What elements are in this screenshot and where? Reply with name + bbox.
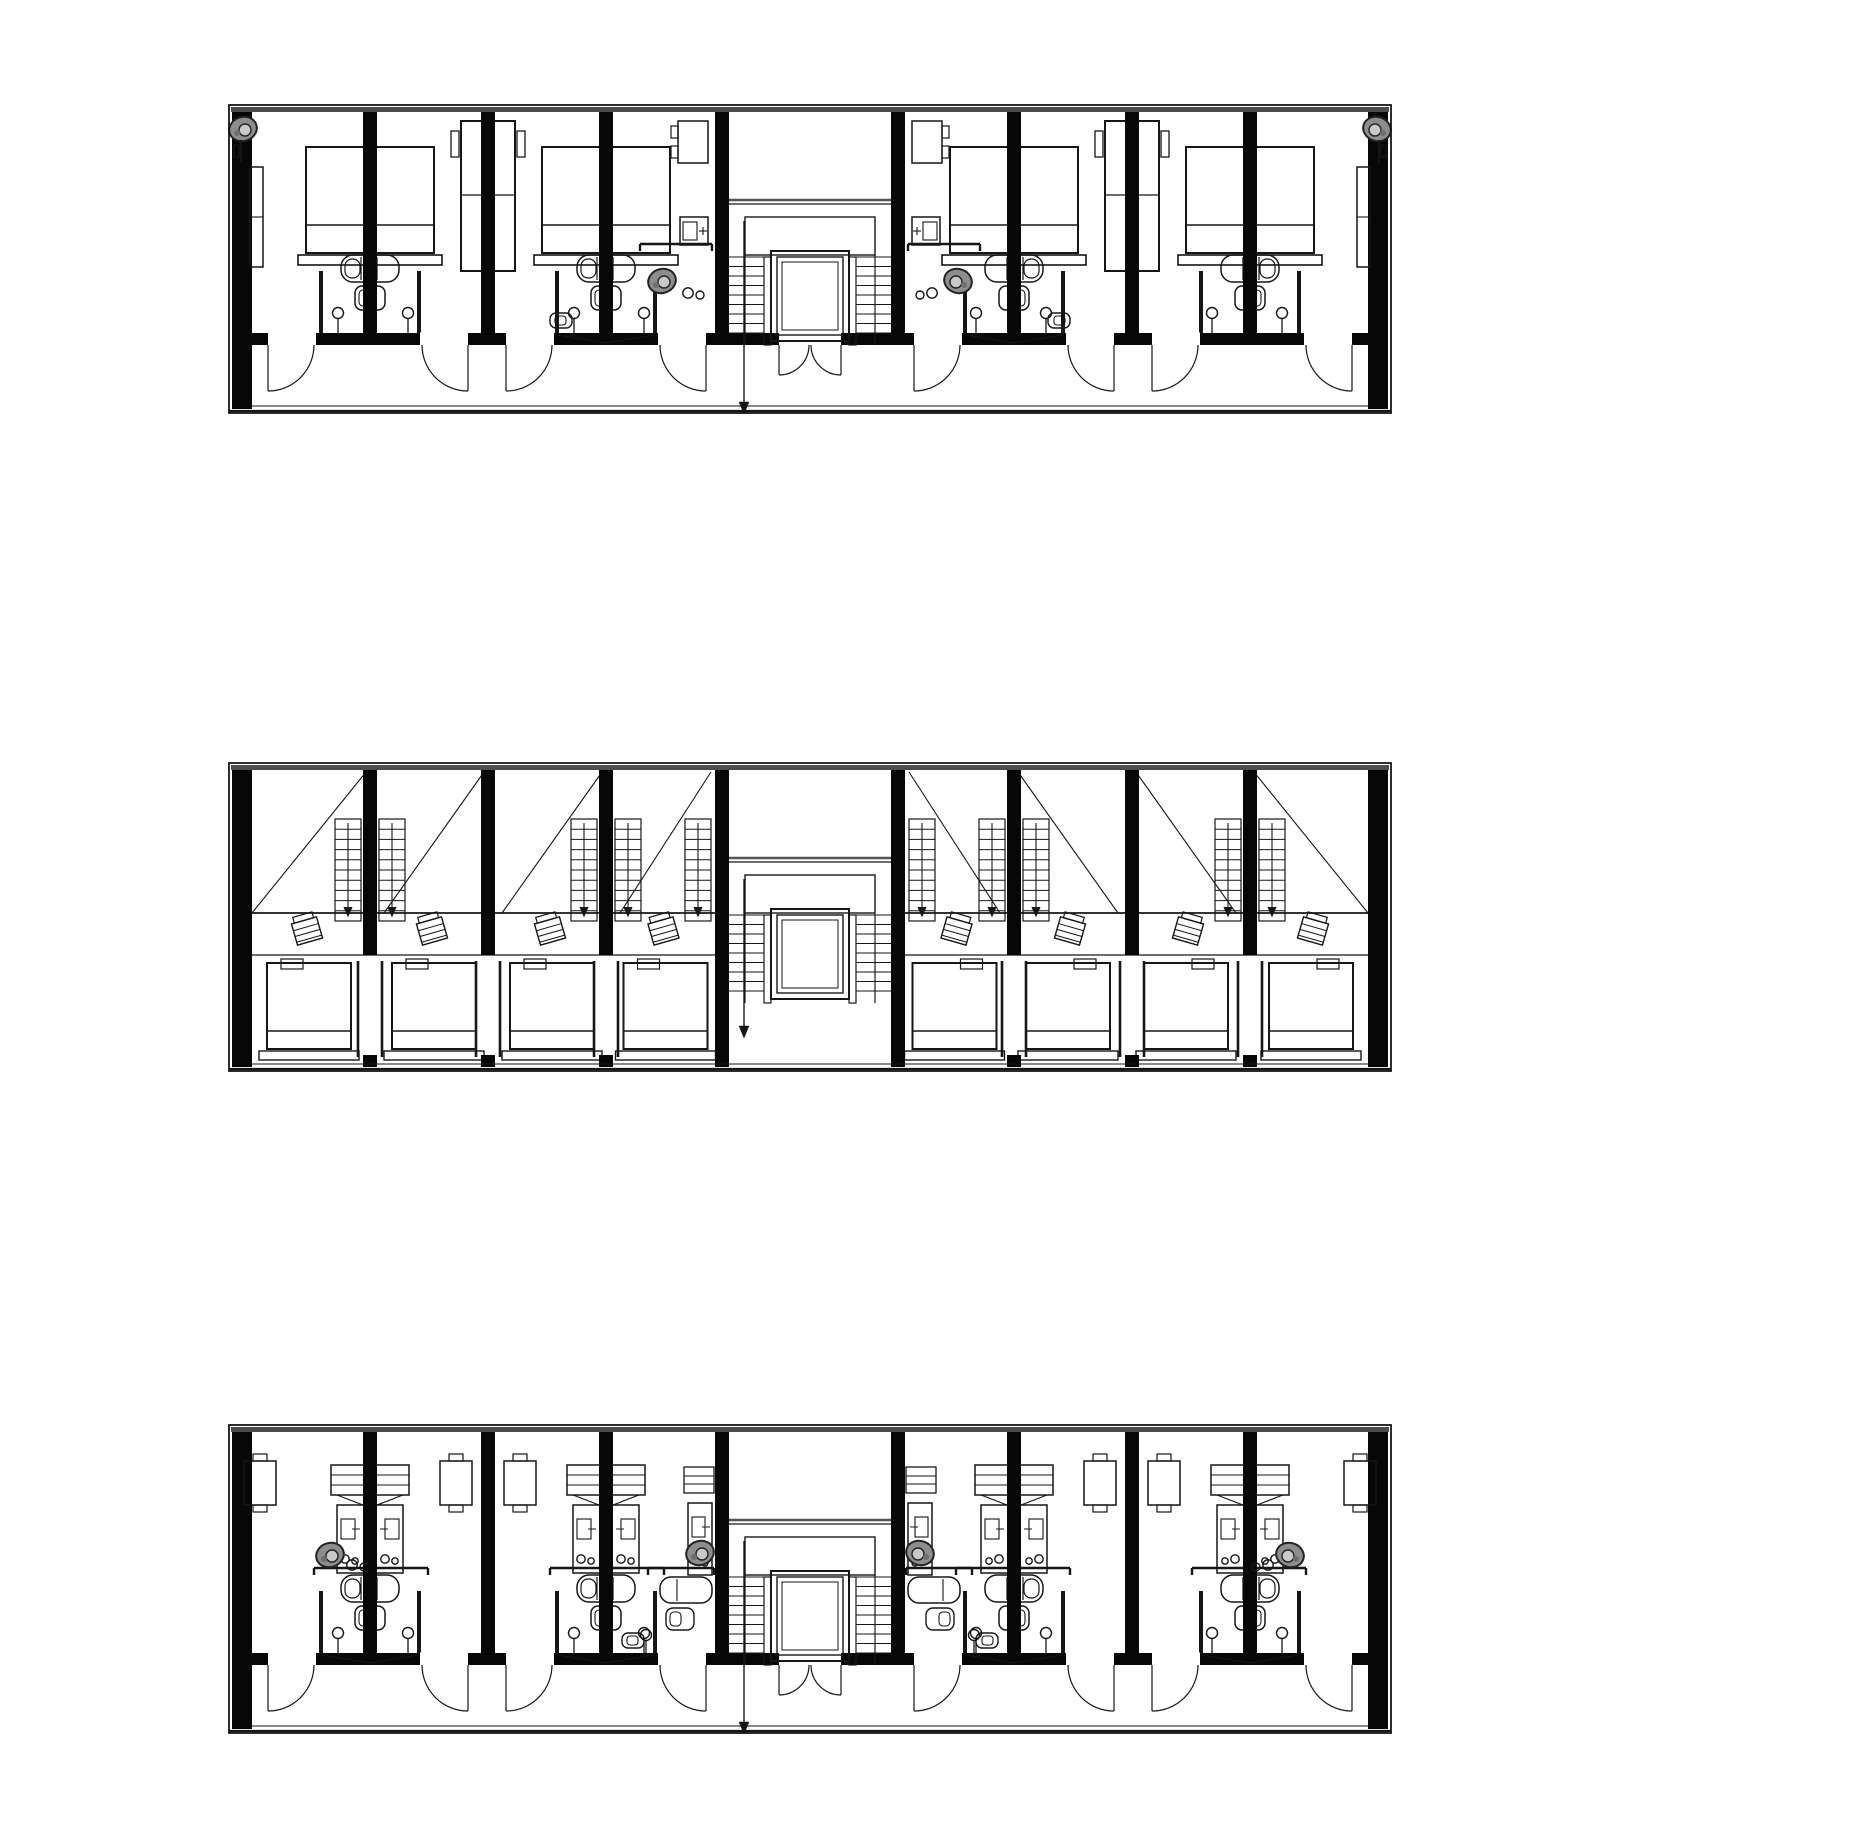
stair-elevator-core xyxy=(715,1432,905,1734)
stair-elevator-core xyxy=(715,770,905,1059)
floor-plan-lower-rooms xyxy=(229,1425,1391,1734)
building-shell xyxy=(229,1425,1391,1733)
floor-plan-loft-level-left-half xyxy=(232,770,729,1067)
building-shell xyxy=(229,763,1391,1071)
floor-plan-loft-level-right-half xyxy=(891,770,1388,1067)
plan-sheet xyxy=(0,0,1862,1848)
floor-plan-loft-level xyxy=(229,763,1391,1071)
stair-elevator-core xyxy=(715,112,905,414)
building-shell xyxy=(229,105,1391,413)
floor-plan-canvas xyxy=(0,0,1862,1848)
floor-plan-upper-rooms xyxy=(226,105,1394,414)
